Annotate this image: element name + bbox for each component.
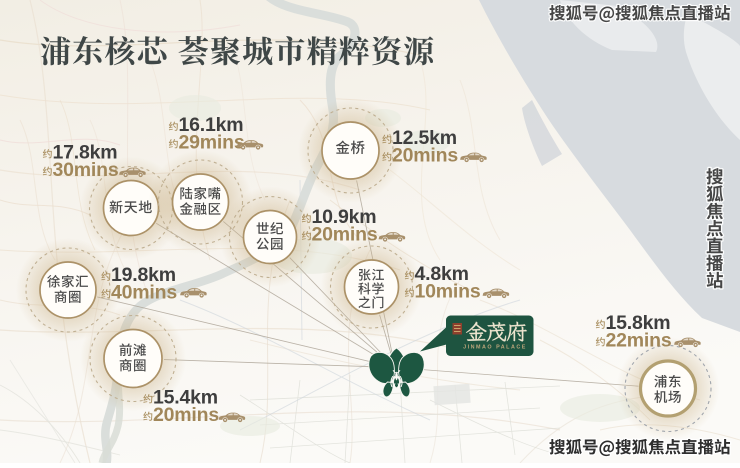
svg-text:JINMAO PALACE: JINMAO PALACE: [463, 345, 527, 351]
svg-text:10mins: 10mins: [415, 281, 481, 303]
svg-text:20mins: 20mins: [153, 404, 219, 426]
svg-text:22mins: 22mins: [606, 330, 672, 352]
svg-text:20mins: 20mins: [392, 145, 458, 167]
svg-text:30mins: 30mins: [53, 159, 119, 181]
svg-text:20mins: 20mins: [312, 224, 378, 246]
svg-text:40mins: 40mins: [111, 282, 177, 304]
svg-text:29mins: 29mins: [179, 132, 245, 154]
